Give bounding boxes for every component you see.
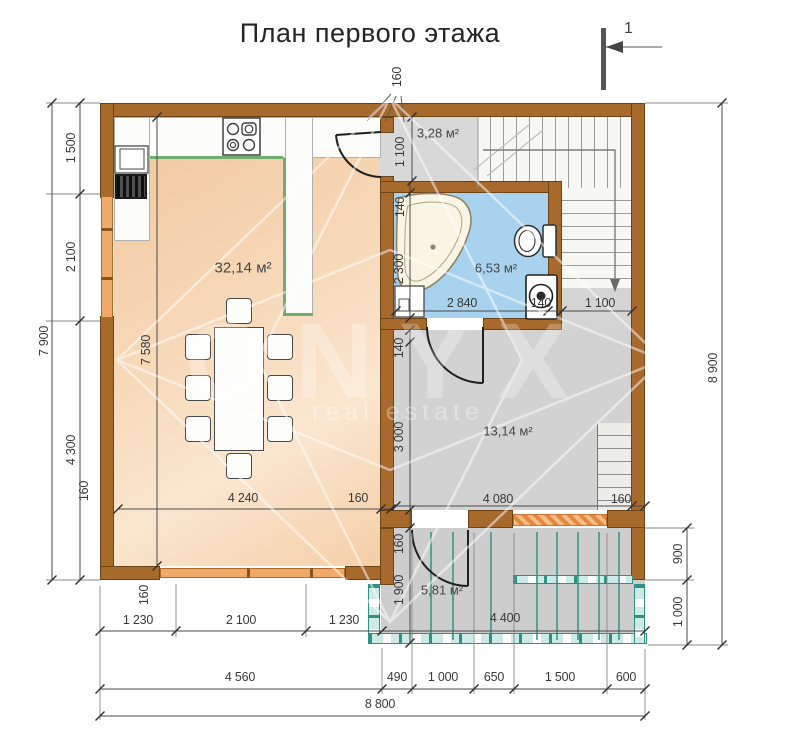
section-marker-label: 1 (624, 20, 633, 38)
dim-label-room-h: 3 000 (392, 422, 406, 452)
room-floor (394, 330, 631, 510)
porch-post-6 (577, 532, 579, 640)
dim-label-bath-w: 2 840 (447, 296, 477, 310)
dim-label-room-wall: 160 (611, 492, 631, 506)
room-label-hall: 3,28 м² (417, 126, 459, 141)
dim-label-bottom2-e: 1 500 (545, 670, 575, 684)
porch-post-8 (618, 532, 620, 640)
dim-label-bottom2-d: 650 (484, 670, 504, 684)
window-bottom-divider-2 (310, 568, 313, 578)
fridge (115, 174, 147, 199)
chair-right-1 (267, 334, 293, 360)
wall-center-stub (380, 117, 394, 133)
dim-label-bottom1-b: 2 100 (226, 613, 256, 627)
window-bottom-divider-1 (247, 568, 250, 578)
room-label-room: 13,14 м² (483, 424, 532, 439)
dim-label-porch-wall: 160 (392, 534, 406, 554)
porch-post-5 (556, 532, 558, 640)
stairs-upper-flight (478, 117, 631, 188)
dim-label-bottom1-c: 1 230 (329, 613, 359, 627)
chair-left-3 (185, 416, 211, 442)
dim-label-bath-wall: 140 (531, 296, 551, 310)
dim-label-bottom1-a: 1 230 (123, 613, 153, 627)
floor-plan-canvas: План первого этажа (0, 0, 800, 731)
dim-label-hall-h: 1 100 (393, 137, 407, 167)
dim-label-porch-h: 1 900 (392, 575, 406, 605)
wall-bottom-left-a (100, 566, 160, 580)
dim-label-bath-gap: 140 (393, 197, 407, 217)
dim-label-living-wall: 160 (348, 491, 368, 505)
dim-label-left-seg1: 1 500 (64, 133, 78, 163)
dim-label-bottom2-b: 490 (387, 670, 407, 684)
dim-label-landing-w: 1 100 (585, 296, 615, 310)
wall-section-bottom-b (468, 510, 513, 528)
dim-label-left-seg2: 2 100 (64, 242, 78, 272)
wall-bath-bottom-b (483, 318, 562, 330)
dim-label-right-seg1: 900 (671, 544, 685, 564)
chair-right-2 (267, 375, 293, 401)
wall-section-bottom-c (607, 510, 645, 528)
dim-label-bottom2-f: 600 (616, 670, 636, 684)
wall-section-bottom-a (380, 510, 412, 528)
dim-label-right-total: 8 900 (706, 353, 720, 383)
dim-label-room-w: 4 080 (483, 492, 513, 506)
wall-bottom-left-b (345, 566, 382, 580)
dim-label-bottom2-c: 1 000 (428, 670, 458, 684)
porch-railing-right (634, 584, 645, 644)
chair-right-3 (267, 416, 293, 442)
dim-label-porch-w: 4 400 (490, 611, 520, 625)
counter-edge-right-b (283, 313, 313, 316)
wall-right (631, 103, 645, 580)
dim-label-top-wall: 160 (390, 67, 404, 87)
kitchen-counter-top (114, 117, 381, 158)
room-label-porch: 5,81 м² (421, 583, 463, 598)
dim-label-living-w: 4 240 (228, 491, 258, 505)
window-left (101, 196, 113, 318)
room-label-bathroom: 6,53 м² (475, 261, 517, 276)
dim-label-bath-h: 2 300 (392, 254, 406, 284)
window-bottom (160, 568, 345, 578)
dim-label-right-seg2: 1 000 (671, 597, 685, 627)
dim-label-bottom-total: 8 800 (365, 697, 395, 711)
dim-label-living-h: 7 580 (139, 335, 153, 365)
counter-edge-right-v (283, 158, 286, 315)
porch-post-4 (536, 532, 538, 640)
kitchen-counter-right (285, 117, 313, 315)
porch-post-7 (598, 532, 600, 640)
porch-railing-top (513, 575, 633, 584)
dim-label-room-gap: 140 (392, 338, 406, 358)
wall-left-lower (100, 316, 114, 580)
wall-bath-bottom-a (380, 318, 427, 330)
window-porch (513, 514, 607, 526)
chair-top (226, 298, 252, 324)
wall-left-upper (100, 103, 114, 198)
dim-label-left-wall: 160 (77, 481, 91, 501)
chair-left-2 (185, 375, 211, 401)
counter-edge-top (150, 156, 283, 159)
window-left-divider-2 (101, 277, 113, 280)
wall-bath-top (380, 181, 562, 193)
dim-label-left-seg3: 4 300 (64, 435, 78, 465)
stairs-right-flight (562, 188, 631, 288)
dim-label-bottom1-wall: 160 (137, 585, 151, 605)
dim-label-left-total: 7 900 (37, 326, 51, 356)
dining-table (214, 327, 264, 451)
wall-top (100, 103, 645, 117)
dim-label-bottom2-a: 4 560 (225, 670, 255, 684)
room-label-kitchen-living: 32,14 м² (214, 260, 271, 277)
chair-left-1 (185, 334, 211, 360)
chair-bottom (226, 453, 252, 479)
page-title: План первого этажа (240, 18, 500, 49)
window-left-divider-1 (101, 228, 113, 231)
porch-railing-bottom (368, 633, 647, 644)
